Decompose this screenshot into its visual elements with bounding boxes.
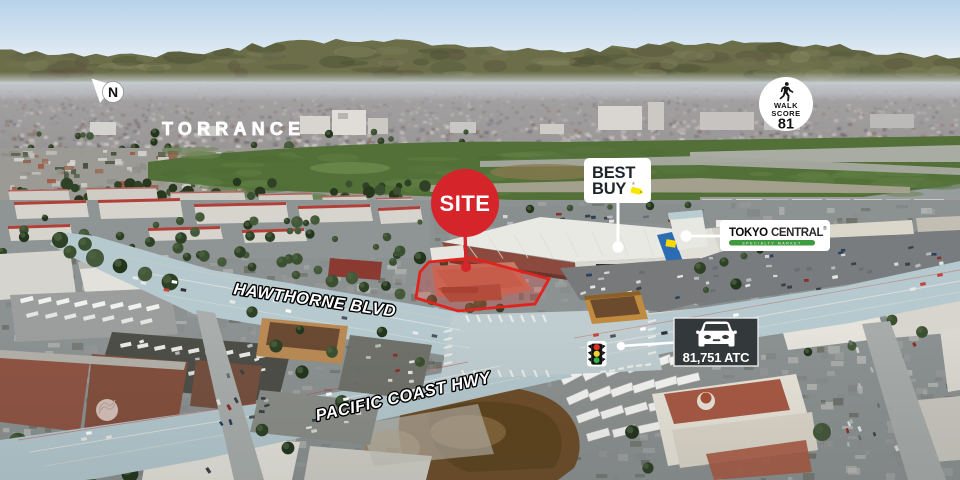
svg-text:CENTRAL: CENTRAL — [771, 227, 824, 239]
svg-text:N: N — [108, 84, 118, 100]
svg-text:SITE: SITE — [440, 191, 491, 216]
svg-text:TORRANCE: TORRANCE — [162, 119, 305, 139]
svg-text:®: ® — [823, 225, 827, 232]
svg-text:81: 81 — [778, 117, 794, 133]
svg-text:81,751 ATC: 81,751 ATC — [683, 350, 750, 365]
svg-text:®: ® — [632, 181, 635, 186]
svg-text:BUY: BUY — [592, 180, 626, 198]
svg-text:TOKYO: TOKYO — [729, 227, 768, 239]
svg-text:SPECIALTY MARKET: SPECIALTY MARKET — [742, 242, 801, 246]
